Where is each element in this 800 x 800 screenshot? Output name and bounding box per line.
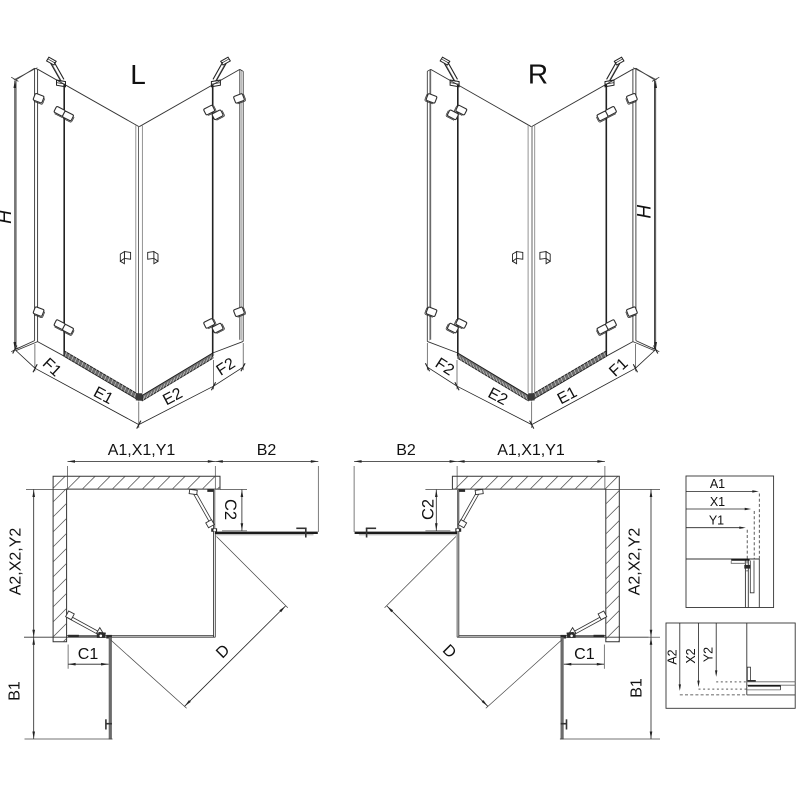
svg-text:X2: X2	[684, 648, 698, 663]
svg-text:L: L	[130, 59, 146, 90]
svg-text:B1: B1	[7, 681, 24, 701]
svg-text:B2: B2	[257, 442, 277, 459]
svg-text:C2: C2	[420, 499, 438, 520]
svg-text:B2: B2	[396, 442, 416, 459]
svg-text:C1: C1	[78, 646, 99, 663]
svg-text:Y1: Y1	[709, 514, 724, 528]
svg-text:A1,X1,Y1: A1,X1,Y1	[497, 442, 565, 459]
svg-text:X1: X1	[710, 495, 725, 509]
svg-text:C1: C1	[574, 646, 595, 663]
svg-text:A2: A2	[665, 649, 679, 664]
svg-text:A1: A1	[710, 477, 725, 491]
svg-text:R: R	[528, 59, 548, 90]
svg-text:Y2: Y2	[702, 647, 716, 662]
svg-text:B1: B1	[629, 678, 646, 698]
svg-text:H: H	[0, 210, 16, 224]
svg-text:H: H	[635, 205, 656, 219]
svg-text:A1,X1,Y1: A1,X1,Y1	[108, 442, 176, 459]
svg-text:A2,X2,Y2: A2,X2,Y2	[627, 528, 644, 596]
svg-text:C2: C2	[221, 499, 239, 520]
svg-text:A2,X2,Y2: A2,X2,Y2	[8, 528, 25, 596]
